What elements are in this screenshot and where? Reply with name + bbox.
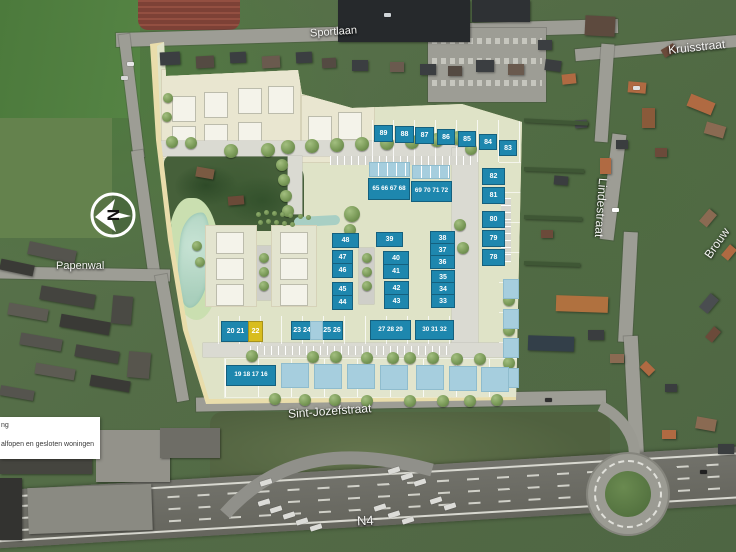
building: [642, 108, 655, 128]
building: [616, 140, 628, 149]
building: [7, 303, 48, 322]
shrub-icon: [256, 212, 261, 217]
tree-icon: [166, 136, 178, 148]
lot-marker-46[interactable]: 46: [332, 263, 353, 278]
lot-marker-48[interactable]: 48: [332, 233, 359, 248]
building: [228, 195, 245, 205]
lot-marker-44[interactable]: 44: [332, 295, 353, 310]
car: [633, 86, 640, 90]
tree-icon: [305, 139, 319, 153]
tree-icon: [330, 138, 344, 152]
tree-icon: [276, 159, 288, 171]
building: [338, 0, 470, 42]
shrub-icon: [274, 220, 279, 225]
building: [665, 384, 677, 392]
building: [39, 285, 96, 308]
building: [705, 326, 721, 343]
lot-marker-39[interactable]: 39: [376, 232, 403, 247]
lot-marker-27-28-29[interactable]: 27 28 29: [370, 320, 411, 340]
lot-marker-reserved: [416, 365, 444, 390]
building: [528, 335, 574, 352]
building: [508, 64, 524, 75]
lot-marker-reserved: [481, 367, 509, 392]
car: [384, 13, 391, 17]
lot-marker-84[interactable]: 84: [479, 134, 497, 150]
building: [89, 375, 130, 393]
building: [0, 478, 22, 540]
tree-icon: [192, 241, 202, 251]
building: [695, 416, 717, 431]
building: [600, 158, 611, 174]
lot-marker-reserved: [281, 363, 309, 388]
shrub-icon: [266, 219, 271, 224]
lot-marker-22[interactable]: 22: [248, 321, 263, 342]
building: [352, 60, 368, 71]
lot-marker-reserved: [347, 364, 375, 389]
legend-line-2: alfopen en gesloten woningen: [1, 441, 94, 448]
lot-marker-reserved: [380, 365, 408, 390]
building: [610, 354, 624, 363]
svg-text:N: N: [104, 209, 123, 221]
lot-marker-30-31-32[interactable]: 30 31 32: [415, 320, 454, 340]
lot-marker-reserved: [310, 321, 323, 340]
aerial-site-plan-map: 89888786858483828180797865 66 67 6869 70…: [0, 0, 736, 552]
road-lindestraat-3: [618, 232, 638, 343]
lot-marker-reserved: [503, 279, 519, 299]
lot-marker-reserved: [369, 162, 410, 177]
tree-icon: [224, 144, 238, 158]
building: [556, 295, 609, 313]
building: [662, 430, 676, 439]
building: [420, 64, 436, 75]
lot-marker-86[interactable]: 86: [437, 129, 455, 145]
shrub-icon: [288, 213, 293, 218]
building: [160, 51, 181, 65]
building: [230, 52, 247, 64]
lot-marker-83[interactable]: 83: [499, 140, 517, 156]
shrub-icon: [306, 215, 311, 220]
shrub-icon: [282, 221, 287, 226]
tree-icon: [162, 112, 172, 122]
lot-marker-reserved: [449, 366, 477, 391]
building: [524, 261, 580, 267]
building: [96, 430, 170, 482]
tree-icon: [457, 242, 469, 254]
lot-marker-reserved: [503, 338, 519, 358]
lot-marker-reserved: [503, 309, 519, 329]
car: [127, 62, 134, 66]
shrub-icon: [272, 211, 277, 216]
car: [612, 208, 619, 212]
tree-icon: [355, 137, 369, 151]
tree-icon: [261, 143, 275, 157]
building: [687, 94, 716, 116]
building: [472, 0, 530, 22]
shrub-icon: [264, 210, 269, 215]
lot-marker-85[interactable]: 85: [458, 131, 476, 147]
tree-icon: [307, 351, 319, 363]
tree-icon: [163, 93, 173, 103]
lot-marker-87[interactable]: 87: [415, 127, 434, 144]
building: [554, 175, 569, 185]
tree-icon: [454, 219, 466, 231]
lot-marker-41[interactable]: 41: [383, 264, 409, 279]
shrub-icon: [298, 214, 303, 219]
roundabout: [588, 454, 668, 534]
tree-icon: [491, 394, 503, 406]
tree-icon: [269, 393, 281, 405]
tree-icon: [451, 353, 463, 365]
parking-strip-south: [250, 346, 450, 355]
lot-marker-43[interactable]: 43: [384, 294, 409, 309]
building: [262, 56, 281, 69]
building: [59, 314, 110, 335]
lot-marker-78[interactable]: 78: [482, 249, 505, 266]
street-label-papenwal: Papenwal: [56, 260, 104, 272]
car: [121, 76, 128, 80]
building: [704, 121, 727, 138]
lot-marker-33[interactable]: 33: [431, 294, 455, 308]
building: [655, 148, 667, 157]
tree-icon: [281, 140, 295, 154]
building: [562, 73, 577, 84]
tree-icon: [344, 206, 360, 222]
tree-icon: [474, 353, 486, 365]
tree-icon: [404, 395, 416, 407]
tree-icon: [362, 253, 372, 263]
building: [538, 40, 552, 50]
tree-icon: [387, 352, 399, 364]
tree-icon: [259, 253, 269, 263]
lot-marker-65-66-67-68[interactable]: 65 66 67 68: [368, 178, 410, 200]
lot-marker-82[interactable]: 82: [482, 168, 505, 185]
building: [541, 230, 553, 238]
building: [296, 52, 313, 64]
lot-marker-reserved: [314, 364, 342, 389]
tree-icon: [361, 352, 373, 364]
tree-icon: [195, 257, 205, 267]
building: [34, 363, 75, 381]
tree-icon: [280, 190, 292, 202]
running-track: [138, 0, 240, 30]
lot-marker-69-70-71-72[interactable]: 69 70 71 72: [411, 181, 452, 202]
lot-marker-19-18-17-16[interactable]: 19 18 17 16: [226, 365, 276, 386]
building: [640, 361, 656, 377]
car: [700, 470, 707, 474]
building: [160, 428, 220, 458]
tree-icon: [278, 174, 290, 186]
lot-marker-25-26[interactable]: 25 26: [321, 321, 343, 340]
legend: ng alfopen en gesloten woningen: [0, 417, 100, 459]
building: [584, 15, 615, 37]
building: [74, 344, 119, 363]
road-lindestraat-4: [624, 336, 645, 463]
lot-marker-81[interactable]: 81: [482, 187, 505, 204]
lot-marker-89[interactable]: 89: [374, 125, 393, 142]
building: [111, 295, 133, 325]
building: [718, 444, 734, 454]
tree-icon: [362, 281, 372, 291]
building: [390, 62, 404, 72]
tree-icon: [362, 267, 372, 277]
building: [322, 58, 337, 69]
tree-icon: [246, 350, 258, 362]
tree-icon: [259, 281, 269, 291]
building: [721, 244, 736, 261]
lot-marker-36[interactable]: 36: [430, 255, 455, 269]
lot-marker-20-21[interactable]: 20 21: [221, 321, 250, 342]
street-label-n4: N4: [357, 513, 374, 529]
building: [19, 332, 62, 351]
building: [699, 209, 717, 228]
sports-field: [0, 0, 140, 118]
tree-icon: [437, 395, 449, 407]
building: [524, 167, 584, 173]
tree-icon: [427, 352, 439, 364]
legend-line-1: ng: [1, 422, 9, 429]
building: [588, 330, 604, 340]
tree-icon: [404, 352, 416, 364]
building: [544, 59, 561, 72]
tree-icon: [330, 351, 342, 363]
building: [27, 484, 153, 534]
lot-marker-reserved: [412, 165, 450, 179]
building: [476, 60, 494, 72]
building: [699, 293, 719, 314]
building: [127, 351, 151, 379]
tree-icon: [299, 394, 311, 406]
tree-icon: [464, 395, 476, 407]
building: [196, 56, 215, 69]
lot-marker-88[interactable]: 88: [395, 126, 414, 143]
shrub-icon: [290, 222, 295, 227]
shrub-icon: [280, 212, 285, 217]
north-arrow-icon: N: [88, 190, 138, 240]
tree-icon: [259, 267, 269, 277]
building: [448, 66, 462, 76]
lot-marker-79[interactable]: 79: [482, 230, 505, 247]
building: [524, 215, 582, 221]
tree-icon: [185, 137, 197, 149]
shrub-icon: [258, 220, 263, 225]
car: [545, 398, 552, 402]
building: [0, 385, 35, 401]
lot-marker-80[interactable]: 80: [482, 211, 505, 228]
